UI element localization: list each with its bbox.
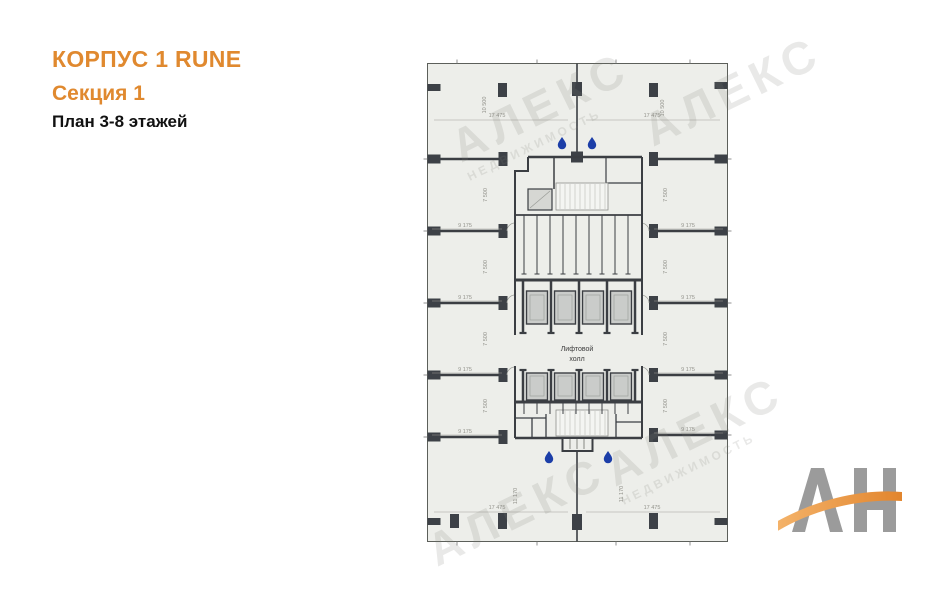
dimension-label: 7 500 bbox=[663, 399, 669, 413]
dimension-label: 7 500 bbox=[483, 332, 489, 346]
dimension-label: 10 500 bbox=[482, 97, 488, 114]
agency-logo bbox=[778, 460, 906, 540]
dimension-label: 9 175 bbox=[458, 429, 472, 435]
section-title: Секция 1 bbox=[52, 82, 241, 106]
dimension-label: 17 475 bbox=[644, 113, 661, 119]
dimension-label: 7 500 bbox=[663, 188, 669, 202]
dimension-label: 9 175 bbox=[458, 295, 472, 301]
floor-plan: Лифтовой холл 17 475 17 475 10 500 10 50… bbox=[420, 58, 735, 548]
dimension-label: 7 500 bbox=[663, 260, 669, 274]
dimension-label: 17 475 bbox=[489, 505, 506, 511]
title-block: КОРПУС 1 RUNE Секция 1 План 3-8 этажей bbox=[52, 46, 241, 132]
elevator-bank-bottom bbox=[520, 370, 639, 402]
dimension-label: 9 175 bbox=[681, 295, 695, 301]
dimension-label: 7 500 bbox=[663, 332, 669, 346]
dimension-label: 7 500 bbox=[483, 399, 489, 413]
building-title: КОРПУС 1 RUNE bbox=[52, 46, 241, 73]
entrance-protrusion bbox=[563, 438, 593, 451]
dimension-label: 17 475 bbox=[489, 113, 506, 119]
dimension-label: 9 175 bbox=[681, 367, 695, 373]
dimension-label: 7 500 bbox=[483, 260, 489, 274]
dimension-label: 11 170 bbox=[619, 486, 625, 502]
floors-subtitle: План 3-8 этажей bbox=[52, 112, 241, 132]
dimension-label: 17 475 bbox=[644, 505, 661, 511]
page: { "header": { "building_title": "КОРПУС … bbox=[0, 0, 941, 600]
dimension-label: 9 175 bbox=[681, 427, 695, 433]
dimension-label: 9 175 bbox=[681, 223, 695, 229]
dimension-label: 7 500 bbox=[483, 188, 489, 202]
dimension-label: 9 175 bbox=[458, 367, 472, 373]
dimension-label: 9 175 bbox=[458, 223, 472, 229]
dimension-label: 10 500 bbox=[660, 100, 666, 117]
dimension-label: 11 170 bbox=[513, 488, 519, 504]
hall-label-line1: Лифтовой bbox=[561, 345, 594, 353]
hall-label-line2: холл bbox=[569, 356, 584, 363]
